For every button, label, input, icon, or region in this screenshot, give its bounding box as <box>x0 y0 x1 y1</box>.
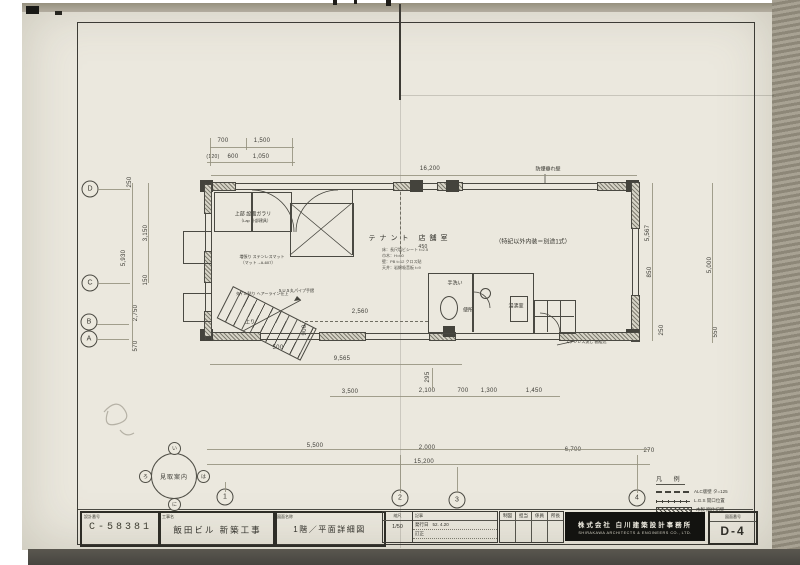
plan-box <box>214 192 252 232</box>
approval-cell: 係員 <box>531 512 547 542</box>
plan-wl <box>632 183 639 228</box>
drawing-number-label: 図面番号 <box>710 513 756 522</box>
key-plan-node: は <box>197 470 210 483</box>
legend-title: 凡 例 <box>656 474 685 485</box>
dimension-label: 250 <box>659 325 665 336</box>
dimension-label: 2,560 <box>352 309 369 315</box>
dimension-label: 1,450 <box>526 388 543 394</box>
grid-bubble: A <box>81 331 98 348</box>
plan-dashv <box>400 192 401 254</box>
dimension-label: 2,000 <box>419 445 436 451</box>
plan-annotation: （特記以外内装＝別途1式） <box>495 237 570 246</box>
dimension-label: 16,200 <box>420 166 440 172</box>
drawing-name-label: 図面名称 <box>277 514 382 520</box>
plan-dl <box>207 464 650 465</box>
grid-bubble: 3 <box>449 492 466 509</box>
design-number-value: C-58381 <box>84 522 157 533</box>
plan-wl <box>205 333 260 340</box>
notes-label: 記事 <box>413 512 497 521</box>
plan-wl <box>320 333 365 340</box>
dimension-label: 700 <box>458 388 469 394</box>
dimension-label: 550 <box>713 327 719 338</box>
scale-value: 1/50 <box>383 524 412 530</box>
company-name-en: SHIRAKAWA ARCHITECTS & ENGINEERS CO., LT… <box>578 531 691 535</box>
legend-item: L.G.S 開口位置 <box>656 498 768 504</box>
dimension-label: 570 <box>133 341 139 352</box>
plan-ln <box>534 316 574 317</box>
approval-cell: 制図 <box>500 512 515 542</box>
plan-dl <box>210 147 294 148</box>
dimension-label: 295 <box>425 372 431 383</box>
grid-bubble: B <box>81 314 98 331</box>
dimension-label: 9,565 <box>334 356 351 362</box>
staircase <box>217 286 317 361</box>
plan-fix <box>440 296 458 320</box>
plan-dl <box>210 138 211 166</box>
dimension-label: 1,300 <box>481 388 498 394</box>
plan-box <box>534 300 576 334</box>
titleblock-design-number: 設計番号 C-58381 <box>80 511 161 547</box>
plan-dl <box>246 138 247 150</box>
dimension-label: 600 <box>228 154 239 160</box>
plan-box <box>510 296 528 322</box>
plan-dl <box>207 162 295 163</box>
revision-label: 訂正 <box>415 531 424 537</box>
key-plan-node: ろ <box>139 470 152 483</box>
plan-dash <box>300 321 428 322</box>
plan-dl <box>97 324 129 325</box>
project-label: 工事名 <box>162 514 273 520</box>
plan-annotation: （マット→A-607） <box>241 260 276 266</box>
legend: 凡 例 ALC版壁 タ=125L.G.S 開口位置木製 間仕切壁 <box>656 468 768 513</box>
plan-annotation: 防煙垂れ壁 <box>535 166 560 173</box>
plan-box <box>183 231 212 264</box>
drawing-number-value: D-4 <box>710 524 756 538</box>
plan-dl <box>400 455 401 493</box>
plan-dl <box>97 339 129 340</box>
legend-item-label: L.G.S 開口位置 <box>694 498 725 504</box>
plan-dl <box>457 467 458 493</box>
titleblock-company: 株式会社 白川建築設計事務所 SHIRAKAWA ARCHITECTS & EN… <box>565 512 705 541</box>
scanned-floor-plan-page: 7001,500(120)6001,05016,2002503,1505,930… <box>0 0 800 565</box>
key-plan-symbol: いろはに 見取案内 <box>151 453 197 499</box>
titleblock-drawing-number: 図面番号 D-4 <box>708 511 758 545</box>
plan-ln <box>78 509 753 510</box>
dimension-label: 500 <box>273 345 284 351</box>
plan-dl <box>211 175 637 176</box>
grid-bubble: C <box>82 275 99 292</box>
plan-dl <box>330 396 560 397</box>
legend-item-label: ALC版壁 タ=125 <box>694 489 728 495</box>
plan-dl <box>132 183 133 345</box>
plan-dl <box>98 283 130 284</box>
dimension-label: 3,500 <box>342 389 359 395</box>
plan-col <box>446 180 459 192</box>
titleblock-scale: 縮尺 1/50 <box>382 511 413 543</box>
plan-box <box>183 293 212 322</box>
design-number-label: 設計番号 <box>84 514 157 520</box>
scale-label: 縮尺 <box>383 512 412 521</box>
approval-cell: 担当 <box>515 512 531 542</box>
plan-ln <box>352 190 353 255</box>
dimension-label: 5,567 <box>645 225 651 242</box>
plan-dl <box>292 138 293 166</box>
key-plan-node: に <box>168 498 181 511</box>
issue-label: 発行日 <box>415 522 429 528</box>
company-name-jp: 株式会社 白川建築設計事務所 <box>578 519 692 529</box>
legend-item: ALC版壁 タ=125 <box>656 489 768 495</box>
plan-dl <box>637 455 638 493</box>
legend-linetype-glyph <box>656 500 690 503</box>
plan-dl <box>98 189 130 190</box>
project-name: 飯田ビル 新築工事 <box>162 524 273 536</box>
dimension-label: 6,700 <box>565 447 582 453</box>
plan-col <box>410 180 423 192</box>
plan-dl <box>652 183 653 341</box>
titleblock-drawing-name: 図面名称 1階／平面詳細図 <box>273 511 386 547</box>
plan-dl <box>148 183 149 283</box>
plan-dl <box>712 183 713 343</box>
grid-bubble: D <box>82 181 99 198</box>
dimension-label: (120) <box>206 154 219 160</box>
plan-box <box>252 192 292 232</box>
dimension-label: 5,930 <box>121 250 127 267</box>
plan-dl <box>207 449 650 450</box>
dimension-label: 2,750 <box>133 305 139 322</box>
plan-annotation: テナント 店舗室 <box>369 233 452 243</box>
plan-wl <box>205 185 211 213</box>
dimension-label: 700 <box>218 138 229 144</box>
plan-fix <box>480 288 491 299</box>
plan-box <box>290 203 354 257</box>
titleblock-approvals: 制図担当係員所長 <box>499 511 564 543</box>
dimension-label: 1,050 <box>253 154 270 160</box>
titleblock-project: 工事名 飯田ビル 新築工事 <box>158 511 277 547</box>
plan-dl <box>210 364 462 365</box>
plan-dl <box>225 482 226 492</box>
plan-dl <box>432 368 433 390</box>
legend-linetype-glyph <box>656 491 690 493</box>
approval-cell: 所長 <box>547 512 563 542</box>
plan-ln <box>472 273 474 332</box>
plan-wl <box>560 333 639 340</box>
dimension-label: 1,500 <box>254 138 271 144</box>
plan-annotation: ＳＵＳ丸パイプ手摺 <box>278 288 314 294</box>
issue-date: 52. 4.20 <box>433 522 449 528</box>
plan-annotation: 上り <box>245 319 255 326</box>
key-plan-label: 見取案内 <box>152 454 196 498</box>
titleblock-notes: 記事 発行日 52. 4.20 訂正 <box>412 511 498 543</box>
finish-note: 天井：岩綿吸音板 t=9 <box>382 265 421 271</box>
drawing-name-value: 1階／平面詳細図 <box>277 524 382 535</box>
